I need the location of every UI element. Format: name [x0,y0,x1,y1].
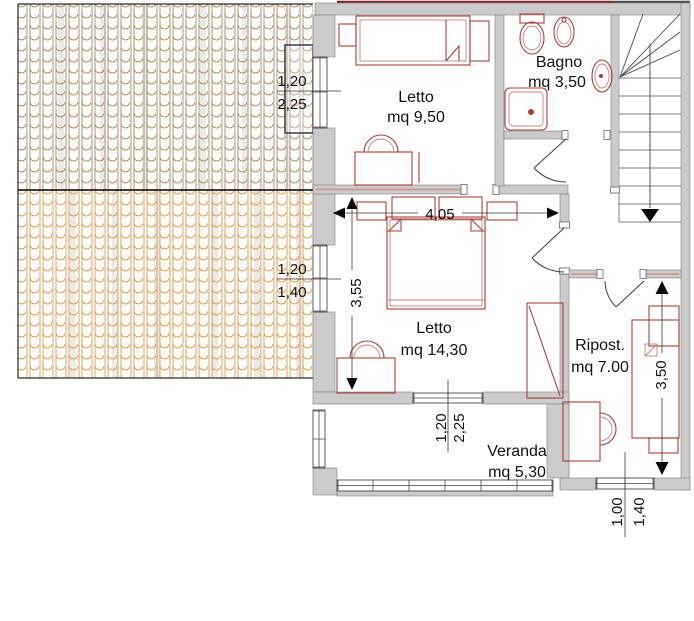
desk-and-chair [563,402,616,461]
room-name-letto-small: Letto [398,89,434,106]
wall-ripost-south-left [560,478,596,490]
double-bed [387,217,485,309]
roof-upper-slope [18,4,313,190]
room-name-bagno: Bagno [536,54,582,71]
dim-window-ripost: 1,00 1,40 [609,452,648,537]
dim-label: 3,50 [653,360,670,389]
room-name-veranda: Veranda [487,443,547,460]
room-area-veranda: mq 5,30 [488,464,546,481]
wall-west-2 [313,128,335,186]
dim-label: 3,55 [348,278,365,307]
dim-label: 1,40 [631,497,648,526]
door-jamb [461,185,467,195]
door-ripostiglio [605,281,644,307]
desk-and-chair [337,341,395,393]
room-name-letto-main: Letto [416,320,452,337]
wall-ripost-south-right [654,478,690,490]
wall-bedroom-south-left [313,392,413,404]
stair-direction-arrow [641,209,659,222]
room-area-ripostiglio: mq 7.00 [571,359,629,376]
room-name-ripostiglio: Ripost. [575,337,625,354]
roof-lower-slope [18,190,313,378]
doors [532,139,644,307]
room-area-bagno: mq 3,50 [528,74,586,91]
shower [505,88,547,130]
wall-bagno-west [495,15,504,186]
wardrobe [527,303,563,398]
window-west [313,245,327,312]
nightstand [357,202,386,220]
room-labels: Letto mq 9,50 Bagno mq 3,50 Letto mq 14,… [387,54,629,481]
dim-label: 1,00 [609,497,626,526]
dim-label: 1,40 [277,284,306,301]
washbasin [592,60,612,92]
window-veranda-south [337,480,553,491]
furniture-bagno [505,14,612,130]
roof [18,4,313,378]
desk-and-chair [355,135,419,185]
dim-ripost-depth: 3,50 [653,281,670,475]
room-area-letto-main: mq 14,30 [401,342,468,359]
wall-north [315,3,690,15]
wall-veranda-sw-corner [313,468,337,495]
door-bagno [534,139,566,182]
wall-veranda-east [547,404,569,478]
wall-east [681,3,690,490]
single-bed [356,16,470,65]
dim-label: 4,05 [425,206,454,223]
door-jamb [611,187,620,193]
dim-label: 2,25 [451,413,468,442]
toilet [520,14,544,54]
wall-veranda-south-strip [337,491,553,496]
door-jamb [560,222,570,228]
floor-plan-page: 4,05 3,55 3,50 1,20 2,25 1,20 1,40 [0,0,694,621]
door-bedroom-main [532,228,564,272]
door-jamb [562,131,568,140]
dim-window-veranda: 1,20 2,25 [433,380,468,452]
dim-label: 2,25 [277,96,306,113]
door-jamb [640,270,646,279]
wall-west-1 [313,15,335,57]
window-veranda-west [313,410,325,468]
wall-west-3 [313,194,335,245]
staircase [619,14,681,222]
nightstand [487,202,517,220]
floor-plan-canvas: 4,05 3,55 3,50 1,20 2,25 1,20 1,40 [0,0,694,621]
door-jamb [560,268,570,274]
window-nw [313,57,327,128]
wall-stair-west [611,15,619,193]
wall-bagno-south [504,131,562,139]
room-area-letto-small: mq 9,50 [387,109,445,126]
door-jamb [604,131,610,140]
dim-bedroom-depth: 3,55 [347,197,366,390]
furniture-letto-main [337,197,563,398]
dim-label: 1,20 [433,413,450,442]
bidet [554,17,574,47]
dim-label: 1,20 [277,261,306,278]
nightstand [339,24,356,46]
dim-label: 1,20 [277,73,306,90]
nightstand [470,21,489,61]
walls [313,2,690,496]
door-jamb [597,270,603,279]
wall-west-4 [313,312,335,392]
wall-bedroom-divider-right [493,185,568,194]
